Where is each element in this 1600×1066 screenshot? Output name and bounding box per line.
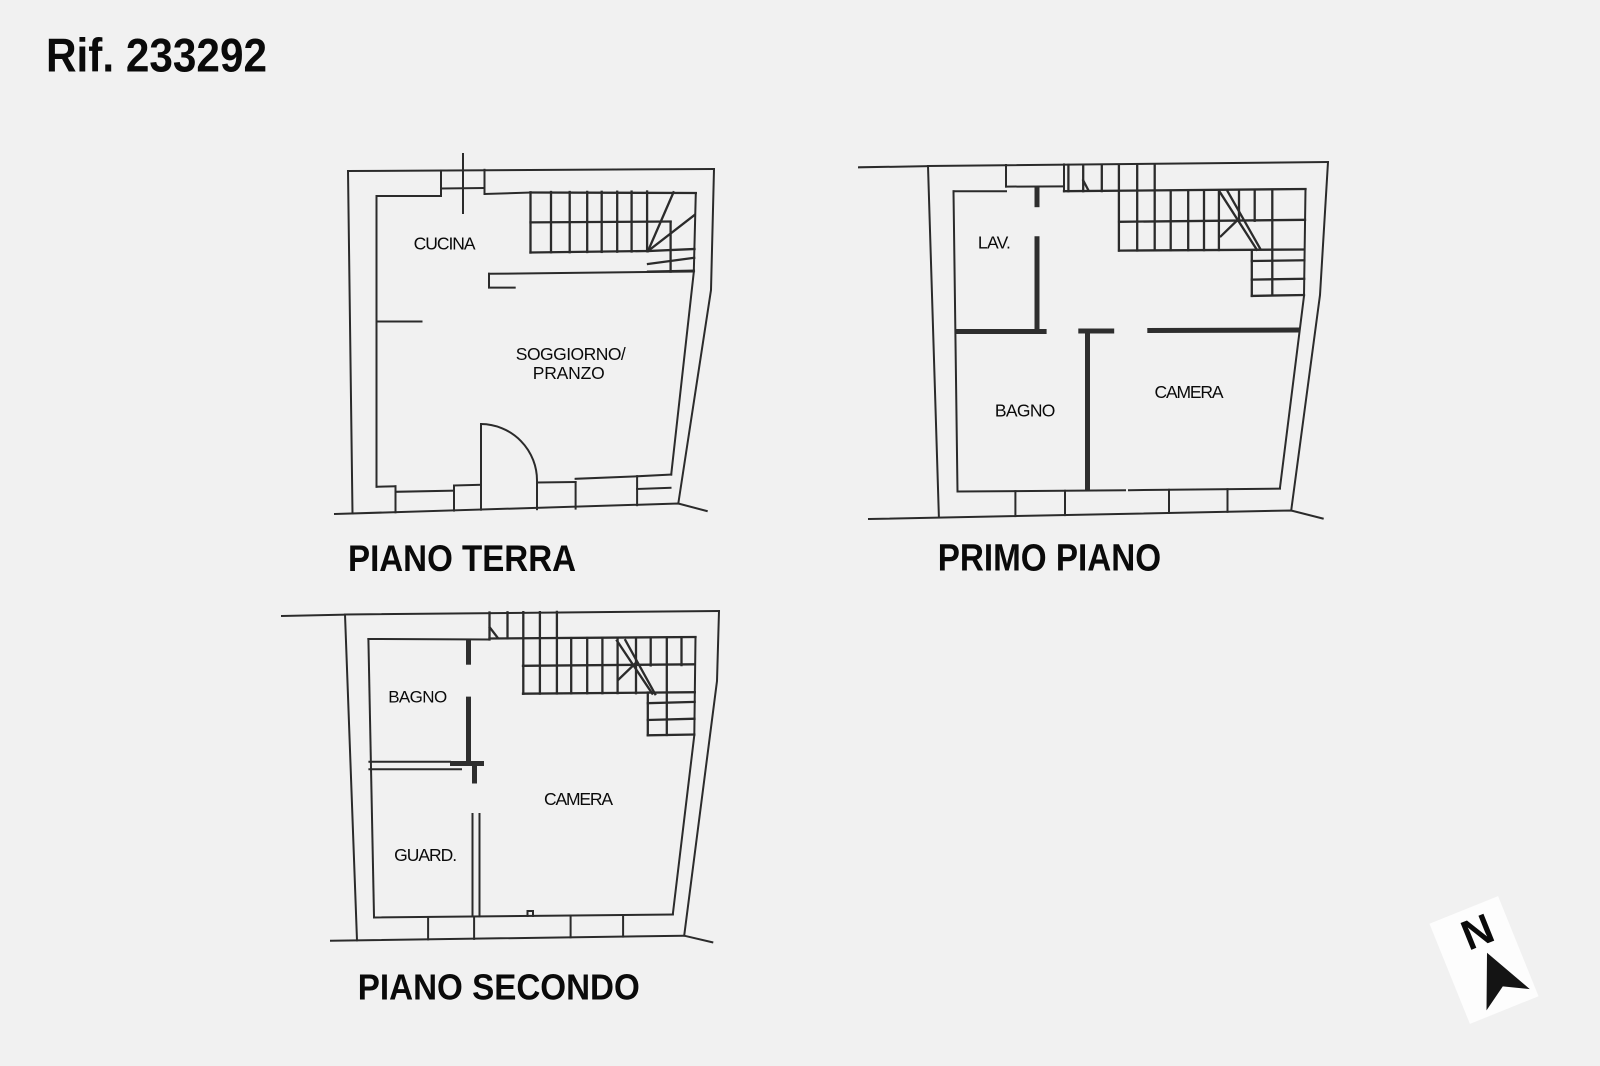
svg-text:PIANO TERRA: PIANO TERRA bbox=[348, 538, 576, 579]
svg-text:CAMERA: CAMERA bbox=[544, 789, 613, 809]
svg-text:Rif. 233292: Rif. 233292 bbox=[46, 29, 267, 82]
svg-text:PRIMO PIANO: PRIMO PIANO bbox=[938, 538, 1161, 580]
svg-text:GUARD.: GUARD. bbox=[394, 845, 457, 865]
svg-text:BAGNO: BAGNO bbox=[995, 400, 1056, 420]
svg-text:PIANO SECONDO: PIANO SECONDO bbox=[358, 967, 640, 1008]
svg-text:CUCINA: CUCINA bbox=[414, 234, 476, 254]
svg-text:SOGGIORNO/: SOGGIORNO/ bbox=[516, 344, 626, 364]
svg-text:PRANZO: PRANZO bbox=[533, 363, 605, 383]
svg-text:CAMERA: CAMERA bbox=[1155, 382, 1224, 402]
svg-text:LAV.: LAV. bbox=[978, 233, 1011, 253]
svg-text:BAGNO: BAGNO bbox=[388, 687, 447, 706]
